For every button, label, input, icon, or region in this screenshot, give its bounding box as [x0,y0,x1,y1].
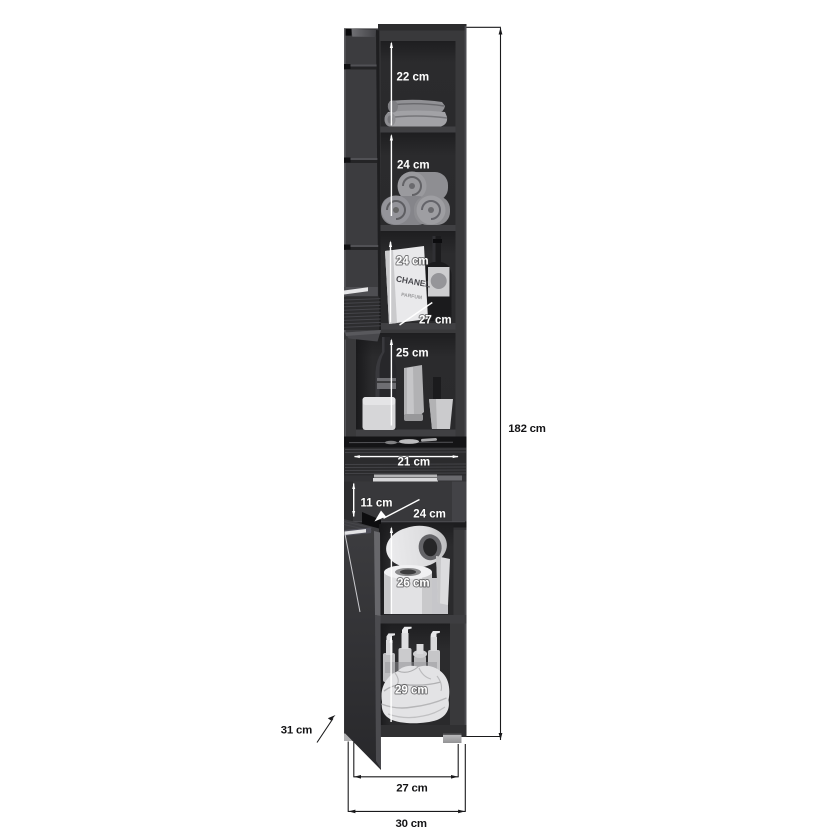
svg-text:27 cm: 27 cm [396,782,427,794]
svg-text:25 cm: 25 cm [396,348,429,360]
svg-text:31 cm: 31 cm [281,725,312,737]
svg-text:182 cm: 182 cm [508,423,546,435]
svg-text:29 cm: 29 cm [395,685,428,697]
svg-text:27 cm: 27 cm [419,314,452,326]
svg-text:26 cm: 26 cm [397,578,430,590]
svg-text:21 cm: 21 cm [398,457,431,469]
svg-text:24 cm: 24 cm [397,160,430,172]
svg-text:11 cm: 11 cm [361,498,393,510]
svg-text:30 cm: 30 cm [396,818,427,830]
svg-text:22 cm: 22 cm [397,72,430,84]
svg-text:24 cm: 24 cm [413,508,446,520]
svg-text:24 cm: 24 cm [396,255,429,267]
